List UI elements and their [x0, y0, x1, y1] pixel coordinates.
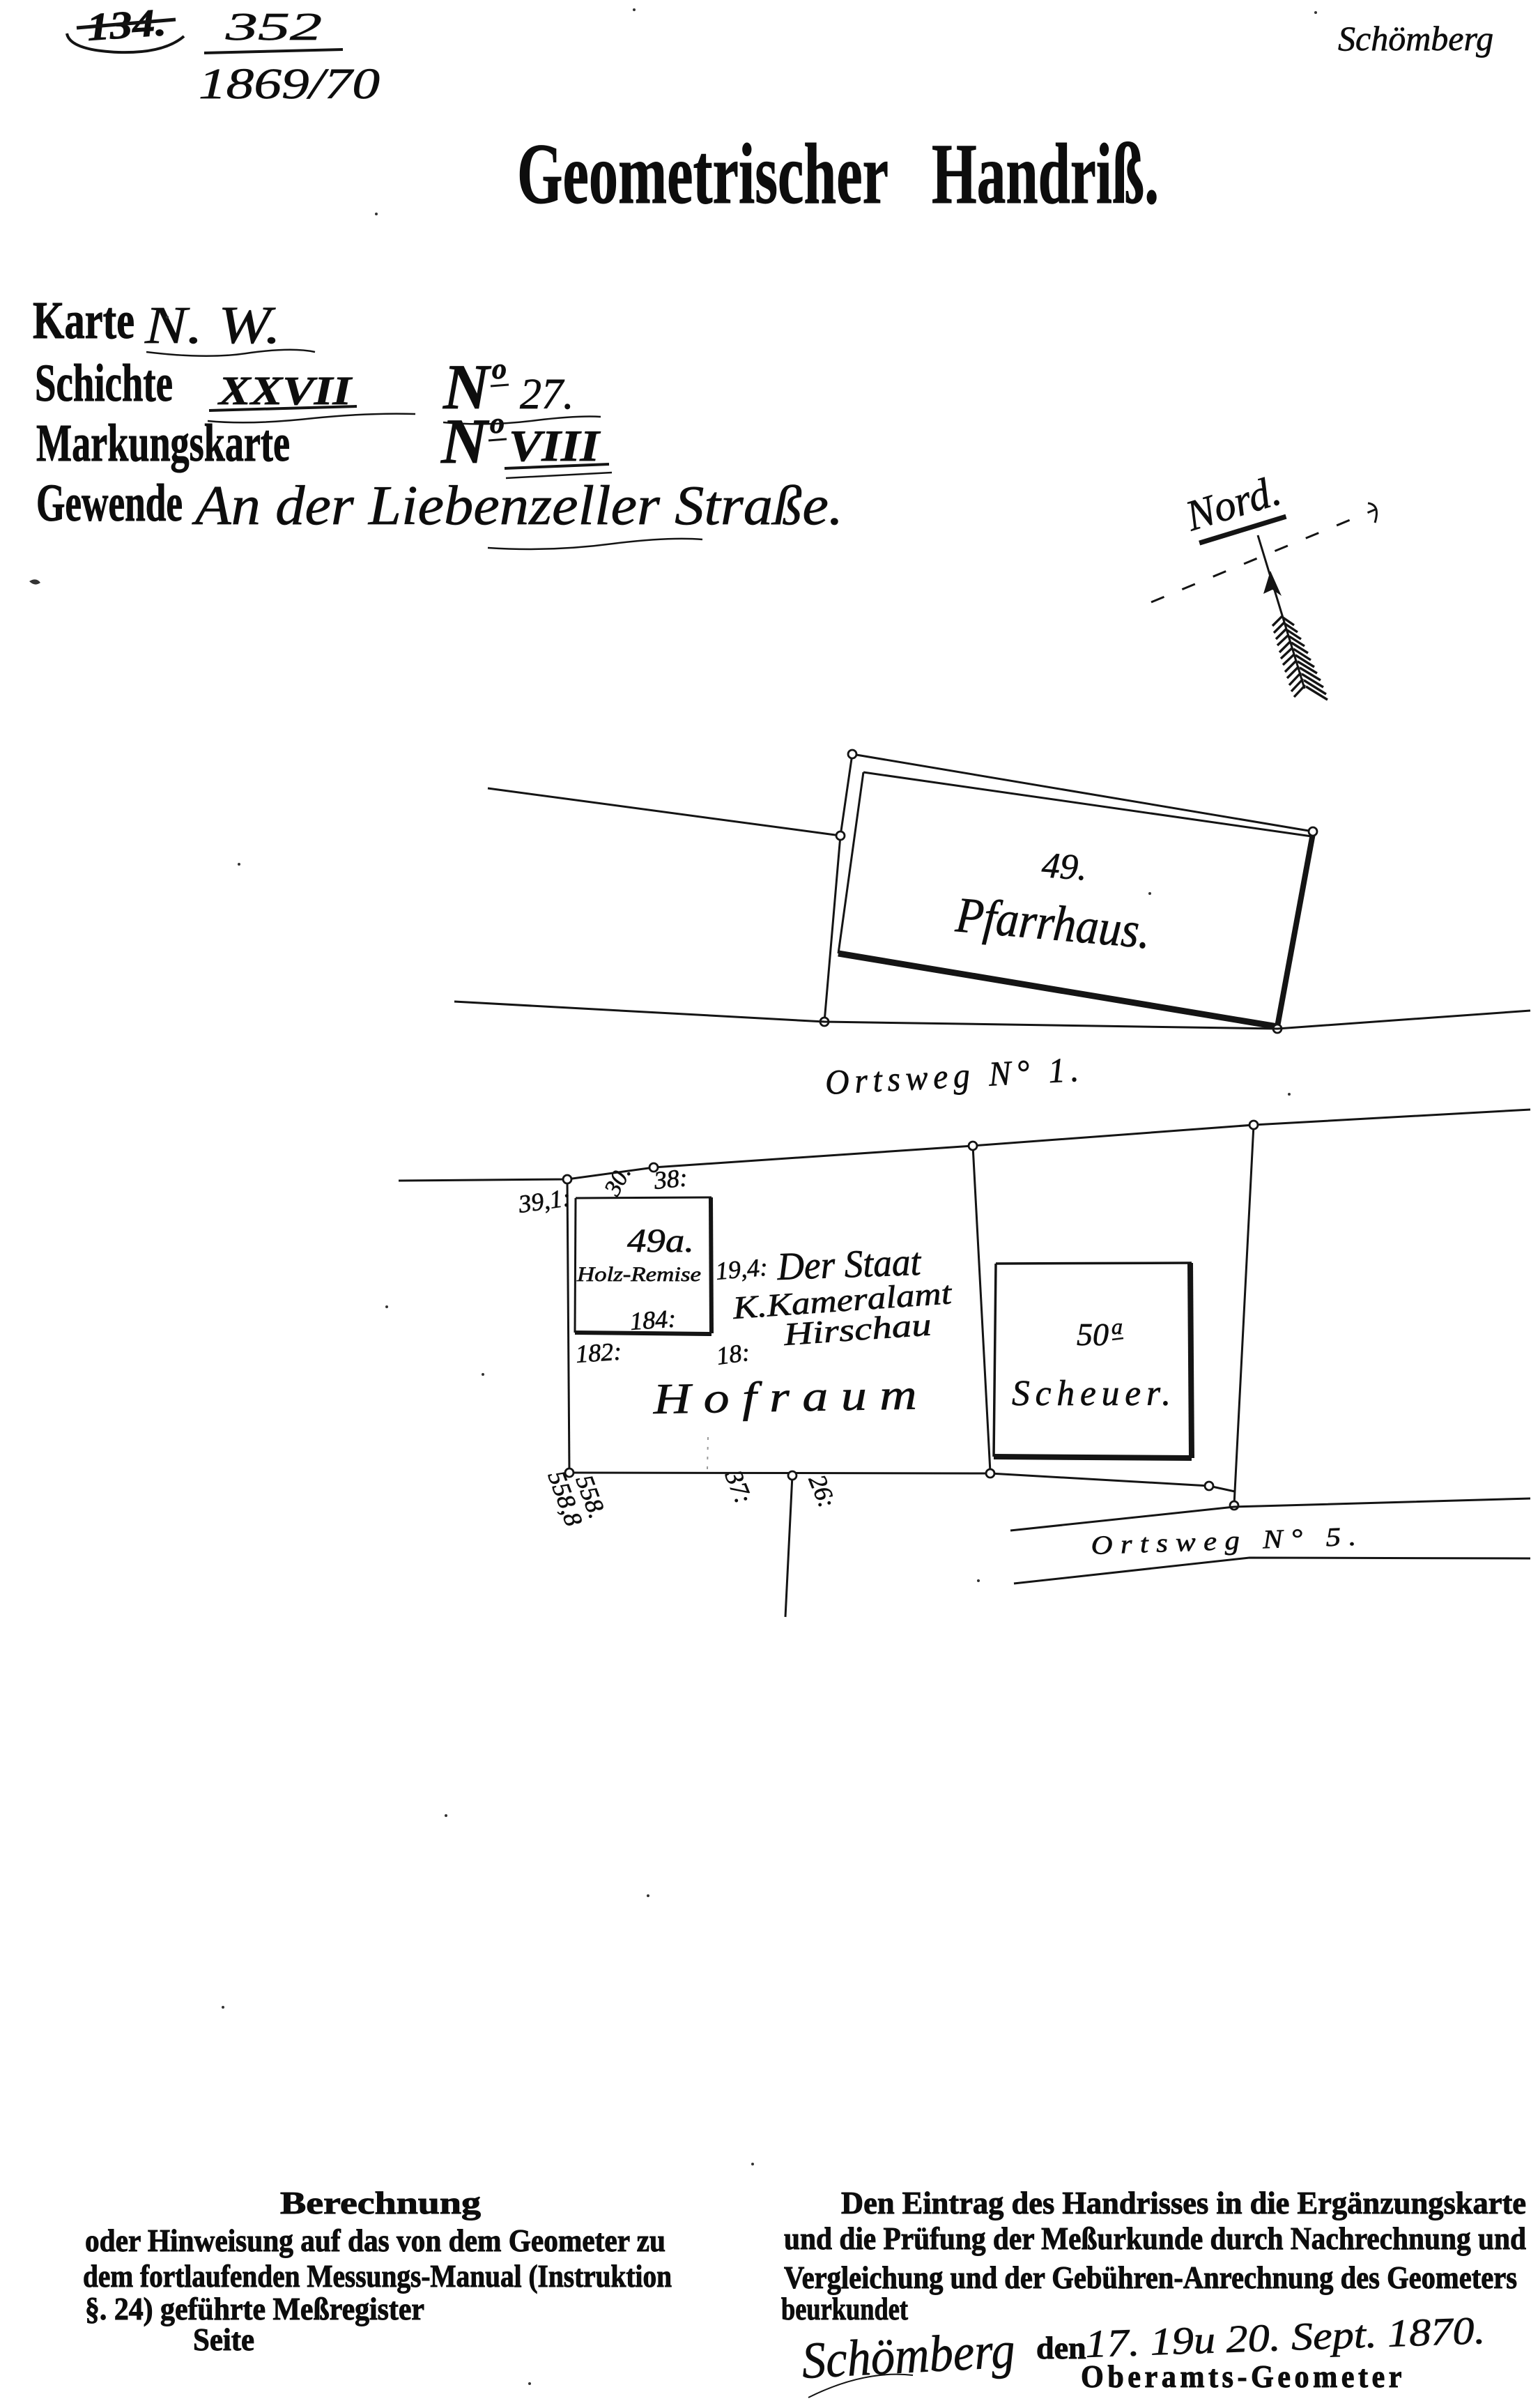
svg-text:o: o — [492, 353, 507, 385]
svg-text:182:: 182: — [575, 1337, 623, 1368]
svg-text:Gewende: Gewende — [36, 474, 183, 532]
svg-text:a: a — [1111, 1314, 1123, 1339]
svg-text:Markungskarte: Markungskarte — [36, 414, 290, 473]
svg-text:38:: 38: — [652, 1163, 689, 1195]
svg-text:184:: 184: — [629, 1304, 677, 1335]
svg-text:Karte: Karte — [33, 291, 134, 350]
svg-text:Holz-Remise: Holz-Remise — [576, 1263, 701, 1286]
svg-text:§. 24) geführte Meßregister: §. 24) geführte Meßregister — [85, 2291, 424, 2326]
svg-text:Geometrischer: Geometrischer — [517, 126, 888, 222]
svg-text:dem fortlaufenden Messungs-Man: dem fortlaufenden Messungs-Manual (Instr… — [83, 2258, 672, 2294]
svg-text:Schichte: Schichte — [35, 354, 173, 413]
svg-text:Schömberg: Schömberg — [801, 2322, 1017, 2390]
svg-text:Vergleichung und der Gebühren-: Vergleichung und der Gebühren-Anrechnung… — [784, 2260, 1517, 2295]
svg-text:49.: 49. — [1040, 845, 1088, 888]
svg-text:Schömberg: Schömberg — [1338, 19, 1493, 58]
svg-text:oder Hinweisung auf das von de: oder Hinweisung auf das von dem Geometer… — [85, 2223, 666, 2258]
svg-text:Scheuer.: Scheuer. — [1012, 1374, 1176, 1413]
svg-text:H o f r a u m: H o f r a u m — [652, 1371, 917, 1423]
svg-text:Handriß.: Handriß. — [932, 126, 1159, 222]
svg-text:N: N — [440, 406, 490, 477]
svg-text:19,4:: 19,4: — [714, 1253, 769, 1285]
svg-text:und die Prüfung der Meßurkunde: und die Prüfung der Meßurkunde durch Nac… — [784, 2221, 1526, 2256]
svg-text:den: den — [1036, 2330, 1086, 2365]
svg-text:27.: 27. — [520, 371, 574, 418]
svg-text:Oberamts-Geometer: Oberamts-Geometer — [1081, 2359, 1406, 2394]
svg-text:beurkundet: beurkundet — [781, 2291, 909, 2326]
svg-text:1869/70: 1869/70 — [199, 61, 380, 108]
svg-text:49a.: 49a. — [627, 1222, 694, 1259]
svg-text:18:: 18: — [715, 1338, 752, 1370]
svg-text:An der Liebenzeller Straße.: An der Liebenzeller Straße. — [192, 475, 843, 537]
svg-text:Den Eintrag des Handrisses in: Den Eintrag des Handrisses in die Ergänz… — [841, 2185, 1526, 2221]
svg-text:352: 352 — [224, 6, 322, 49]
svg-text:Seite: Seite — [193, 2322, 254, 2357]
svg-text:50: 50 — [1077, 1317, 1109, 1352]
svg-text:N. W.: N. W. — [144, 296, 281, 355]
svg-text:o: o — [490, 408, 505, 440]
svg-text:Berechnung: Berechnung — [280, 2185, 481, 2221]
svg-text:VIII: VIII — [509, 421, 601, 470]
